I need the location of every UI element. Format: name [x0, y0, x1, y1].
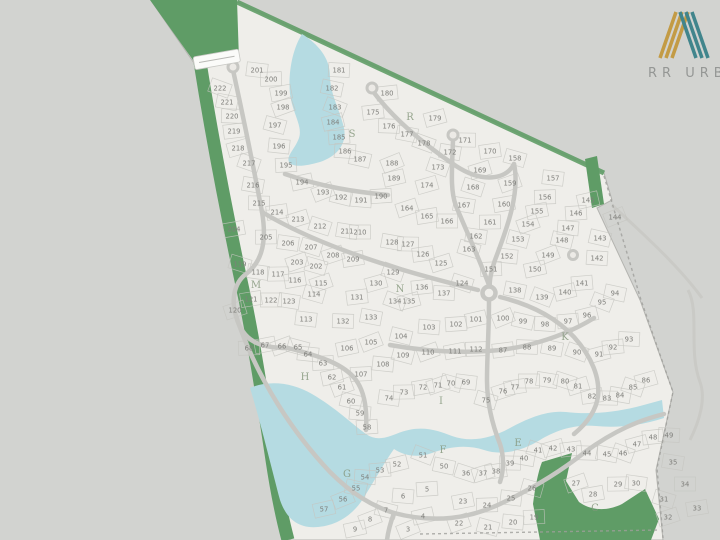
lot-number-47: 47: [633, 440, 642, 448]
lot-number-39: 39: [506, 459, 515, 467]
lot-number-75: 75: [482, 396, 491, 404]
lot-number-79: 79: [543, 376, 552, 384]
lot-number-43: 43: [567, 445, 576, 453]
lot-number-181: 181: [333, 66, 346, 74]
lot-number-143: 143: [594, 234, 607, 242]
lot-number-197: 197: [269, 121, 282, 129]
lot-number-219: 219: [228, 127, 241, 135]
lot-number-89: 89: [548, 344, 557, 352]
lot-number-59: 59: [356, 409, 365, 417]
lot-number-174: 174: [421, 181, 434, 189]
lot-number-108: 108: [377, 360, 390, 368]
lot-number-163: 163: [463, 245, 476, 253]
street-label-G: G: [343, 469, 351, 480]
lot-number-198: 198: [277, 103, 290, 111]
lot-number-154: 154: [522, 220, 535, 228]
lot-number-94: 94: [611, 289, 620, 297]
lot-number-199: 199: [275, 89, 288, 97]
lot-number-82: 82: [588, 392, 597, 400]
lot-number-70: 70: [447, 379, 456, 387]
street-label-F: F: [440, 445, 447, 456]
lot-number-126: 126: [417, 250, 430, 258]
lot-number-118: 118: [252, 268, 265, 276]
lot-number-202: 202: [310, 262, 323, 270]
lot-number-21: 21: [484, 523, 493, 531]
lot-number-191: 191: [355, 196, 368, 204]
lot-number-45: 45: [603, 450, 612, 458]
lot-number-155: 155: [531, 207, 544, 215]
lot-number-9: 9: [353, 525, 357, 533]
lot-number-106: 106: [341, 344, 354, 352]
lot-number-87: 87: [499, 346, 508, 354]
lot-number-192: 192: [335, 193, 348, 201]
lot-number-104: 104: [395, 332, 408, 340]
lot-number-110: 110: [422, 348, 435, 356]
lot-number-91: 91: [595, 350, 604, 358]
lot-number-185: 185: [333, 133, 346, 141]
lot-number-164: 164: [401, 204, 414, 212]
lot-number-78: 78: [525, 377, 534, 385]
lot-number-102: 102: [450, 320, 463, 328]
street-label-S: S: [349, 129, 356, 140]
lot-number-170: 170: [484, 147, 497, 155]
lot-number-46: 46: [619, 449, 628, 457]
lot-number-31: 31: [660, 495, 669, 503]
lot-number-71: 71: [434, 381, 443, 389]
lot-number-50: 50: [440, 462, 449, 470]
lot-number-8: 8: [368, 515, 372, 523]
lot-number-25: 25: [507, 494, 516, 502]
culdesac-northcentral: [448, 130, 458, 140]
lot-number-205: 205: [260, 233, 273, 241]
lot-number-52: 52: [393, 460, 402, 468]
lot-number-33: 33: [693, 504, 702, 512]
lot-number-125: 125: [435, 259, 448, 267]
lot-number-193: 193: [317, 188, 330, 196]
street-label-N: N: [396, 284, 405, 295]
lot-number-140: 140: [559, 288, 572, 296]
lot-number-74: 74: [385, 394, 394, 402]
roundabout-central: [483, 287, 496, 300]
lot-number-60: 60: [347, 397, 356, 405]
lot-number-165: 165: [421, 212, 434, 220]
lot-number-133: 133: [365, 313, 378, 321]
lot-number-40: 40: [520, 454, 529, 462]
lot-number-36: 36: [462, 469, 471, 477]
lot-number-151: 151: [485, 265, 498, 273]
lot-number-190: 190: [375, 192, 388, 200]
road-outside-east: [688, 290, 702, 440]
lot-number-142: 142: [591, 254, 604, 262]
lot-number-66: 66: [278, 342, 287, 350]
lot-number-81: 81: [574, 382, 583, 390]
lot-number-111: 111: [449, 347, 462, 355]
street-label-R: R: [406, 112, 414, 123]
lot-number-203: 203: [291, 258, 304, 266]
lot-number-195: 195: [280, 161, 293, 169]
lot-number-76: 76: [499, 387, 508, 395]
lot-number-88: 88: [523, 343, 532, 351]
lot-number-187: 187: [354, 155, 367, 163]
lot-number-157: 157: [547, 174, 560, 182]
lot-number-153: 153: [512, 235, 525, 243]
lot-number-188: 188: [386, 159, 399, 167]
lot-number-208: 208: [327, 251, 340, 259]
brand-name: RR URB: [648, 66, 720, 81]
lot-number-128: 128: [386, 238, 399, 246]
lot-number-173: 173: [432, 163, 445, 171]
lot-number-184: 184: [327, 118, 340, 126]
lot-number-57: 57: [320, 505, 329, 513]
lot-number-30: 30: [632, 479, 641, 487]
lot-number-147: 147: [562, 224, 575, 232]
lot-number-90: 90: [573, 348, 582, 356]
lot-number-73: 73: [400, 388, 409, 396]
lot-number-148: 148: [556, 236, 569, 244]
lot-number-194: 194: [296, 178, 309, 186]
lot-number-176: 176: [383, 122, 396, 130]
lot-number-131: 131: [351, 293, 364, 301]
street-label-E: E: [514, 438, 521, 449]
lot-number-49: 49: [665, 431, 674, 439]
street-label-I: I: [439, 396, 443, 407]
lot-number-63: 63: [319, 359, 328, 367]
lot-number-139: 139: [536, 293, 549, 301]
lot-number-32: 32: [664, 513, 673, 521]
lot-number-112: 112: [470, 345, 483, 353]
lot-number-23: 23: [459, 497, 468, 505]
lot-number-84: 84: [616, 391, 625, 399]
lot-number-116: 116: [289, 276, 302, 284]
lot-number-215: 215: [253, 199, 266, 207]
masterplan-screenshot: { "brand": { "name": "RR URB", "monogram…: [0, 0, 720, 540]
lot-number-24: 24: [483, 501, 492, 509]
lot-number-156: 156: [539, 193, 552, 201]
lot-number-37: 37: [479, 469, 488, 477]
lot-number-6: 6: [401, 492, 405, 500]
lot-number-180: 180: [381, 89, 394, 97]
lot-number-41: 41: [534, 446, 543, 454]
lot-number-100: 100: [497, 314, 510, 322]
lot-number-217: 217: [243, 159, 256, 167]
lot-number-22: 22: [455, 519, 464, 527]
lot-number-132: 132: [337, 317, 350, 325]
lot-number-83: 83: [603, 394, 612, 402]
monogram-teal-stripes: [680, 12, 708, 58]
lot-number-107: 107: [355, 370, 368, 378]
lot-number-166: 166: [441, 217, 454, 225]
lot-number-105: 105: [365, 338, 378, 346]
lot-number-186: 186: [339, 147, 352, 155]
lot-number-115: 115: [315, 279, 328, 287]
lot-number-3: 3: [406, 525, 410, 533]
lot-number-34: 34: [681, 480, 690, 488]
lot-number-134: 134: [389, 297, 402, 305]
lot-number-149: 149: [542, 251, 555, 259]
culdesac-north: [367, 83, 377, 93]
lot-number-65: 65: [294, 343, 303, 351]
lot-number-216: 216: [247, 181, 260, 189]
lot-number-117: 117: [272, 270, 285, 278]
lot-number-124: 124: [456, 279, 469, 287]
lot-number-167: 167: [458, 201, 471, 209]
lot-number-178: 178: [418, 139, 431, 147]
lot-number-20: 20: [509, 518, 518, 526]
lot-number-7: 7: [384, 506, 388, 514]
lot-number-144: 144: [609, 213, 622, 221]
lot-number-196: 196: [273, 142, 286, 150]
lot-number-55: 55: [352, 484, 361, 492]
lot-number-28: 28: [589, 490, 598, 498]
lot-number-162: 162: [470, 232, 483, 240]
lot-number-200: 200: [265, 75, 278, 83]
lot-number-61: 61: [338, 383, 347, 391]
lot-number-123: 123: [283, 297, 296, 305]
lot-number-171: 171: [459, 136, 472, 144]
street-label-C: C: [591, 503, 599, 514]
lot-number-145: 145: [582, 196, 595, 204]
lot-number-207: 207: [305, 243, 318, 251]
lot-number-121: 121: [245, 295, 258, 303]
lot-number-179: 179: [429, 114, 442, 122]
masterplan-map: 3456789192021222324252627282930313233343…: [0, 0, 720, 540]
lot-number-161: 161: [484, 218, 497, 226]
lot-number-29: 29: [614, 480, 623, 488]
brand-logo: RR URB: [646, 4, 720, 94]
lot-number-103: 103: [423, 323, 436, 331]
lot-number-27: 27: [572, 479, 581, 487]
lot-number-212: 212: [314, 222, 327, 230]
lot-number-4: 4: [421, 512, 425, 520]
lot-number-130: 130: [370, 279, 383, 287]
lot-number-69: 69: [462, 378, 471, 386]
lot-number-221: 221: [221, 98, 234, 106]
lot-number-97: 97: [564, 317, 573, 325]
lot-number-95: 95: [598, 298, 607, 306]
lot-number-85: 85: [629, 383, 638, 391]
lot-number-160: 160: [498, 200, 511, 208]
lot-number-77: 77: [511, 383, 520, 391]
lot-number-98: 98: [541, 320, 550, 328]
street-label-H: H: [301, 372, 310, 383]
lot-number-35: 35: [669, 458, 678, 466]
lot-number-169: 169: [474, 166, 487, 174]
lot-number-129: 129: [387, 268, 400, 276]
lot-number-201: 201: [251, 66, 264, 74]
lot-number-72: 72: [419, 383, 428, 391]
lot-number-152: 152: [501, 252, 514, 260]
lot-number-67: 67: [261, 341, 270, 349]
lot-number-56: 56: [339, 495, 348, 503]
lot-number-96: 96: [583, 311, 592, 319]
lot-number-64: 64: [304, 350, 313, 358]
lot-number-146: 146: [570, 209, 583, 217]
lot-number-214: 214: [271, 208, 284, 216]
lot-number-19: 19: [530, 513, 539, 521]
lot-number-150: 150: [529, 265, 542, 273]
lot-number-62: 62: [328, 373, 337, 381]
lot-number-220: 220: [226, 112, 239, 120]
lot-number-213: 213: [292, 215, 305, 223]
lot-number-51: 51: [419, 451, 428, 459]
lot-number-114: 114: [308, 290, 321, 298]
lot-number-109: 109: [397, 351, 410, 359]
lot-number-206: 206: [282, 239, 295, 247]
lot-number-86: 86: [642, 376, 651, 384]
lot-number-53: 53: [376, 466, 385, 474]
lot-number-141: 141: [576, 279, 589, 287]
lot-number-168: 168: [467, 183, 480, 191]
lot-number-204: 204: [228, 225, 241, 233]
lot-number-119: 119: [234, 260, 247, 268]
lot-number-44: 44: [583, 449, 592, 457]
lot-number-99: 99: [519, 317, 528, 325]
lot-number-48: 48: [649, 433, 658, 441]
lot-number-38: 38: [492, 467, 501, 475]
lot-number-127: 127: [402, 240, 415, 248]
lot-number-42: 42: [549, 444, 558, 452]
lot-number-5: 5: [425, 485, 429, 493]
lot-number-138: 138: [509, 286, 522, 294]
lot-number-209: 209: [347, 255, 360, 263]
lot-number-177: 177: [401, 130, 414, 138]
lot-number-218: 218: [232, 144, 245, 152]
lot-number-211: 211: [341, 227, 354, 235]
lot-number-158: 158: [509, 154, 522, 162]
lot-number-222: 222: [214, 84, 227, 92]
culdesac-east: [569, 251, 578, 260]
lot-number-93: 93: [625, 335, 634, 343]
lot-number-137: 137: [438, 289, 451, 297]
street-label-M: M: [251, 280, 261, 291]
lot-number-183: 183: [329, 103, 342, 111]
lot-number-136: 136: [416, 283, 429, 291]
lot-number-159: 159: [504, 179, 517, 187]
street-label-K: K: [561, 332, 569, 343]
lot-number-172: 172: [444, 148, 457, 156]
lot-number-26: 26: [528, 484, 537, 492]
lot-number-182: 182: [326, 84, 339, 92]
brand-monogram-icon: [654, 6, 718, 64]
lot-number-189: 189: [388, 174, 401, 182]
lot-number-175: 175: [367, 108, 380, 116]
lot-number-210: 210: [354, 228, 367, 236]
lot-number-122: 122: [265, 296, 278, 304]
lot-number-58: 58: [363, 423, 372, 431]
lot-number-92: 92: [609, 343, 618, 351]
lot-number-113: 113: [300, 315, 313, 323]
lot-number-68: 68: [245, 344, 254, 352]
lot-number-120: 120: [229, 306, 242, 314]
lot-number-135: 135: [403, 297, 416, 305]
lot-number-54: 54: [361, 473, 370, 481]
lot-number-101: 101: [470, 315, 483, 323]
lot-number-80: 80: [561, 377, 570, 385]
